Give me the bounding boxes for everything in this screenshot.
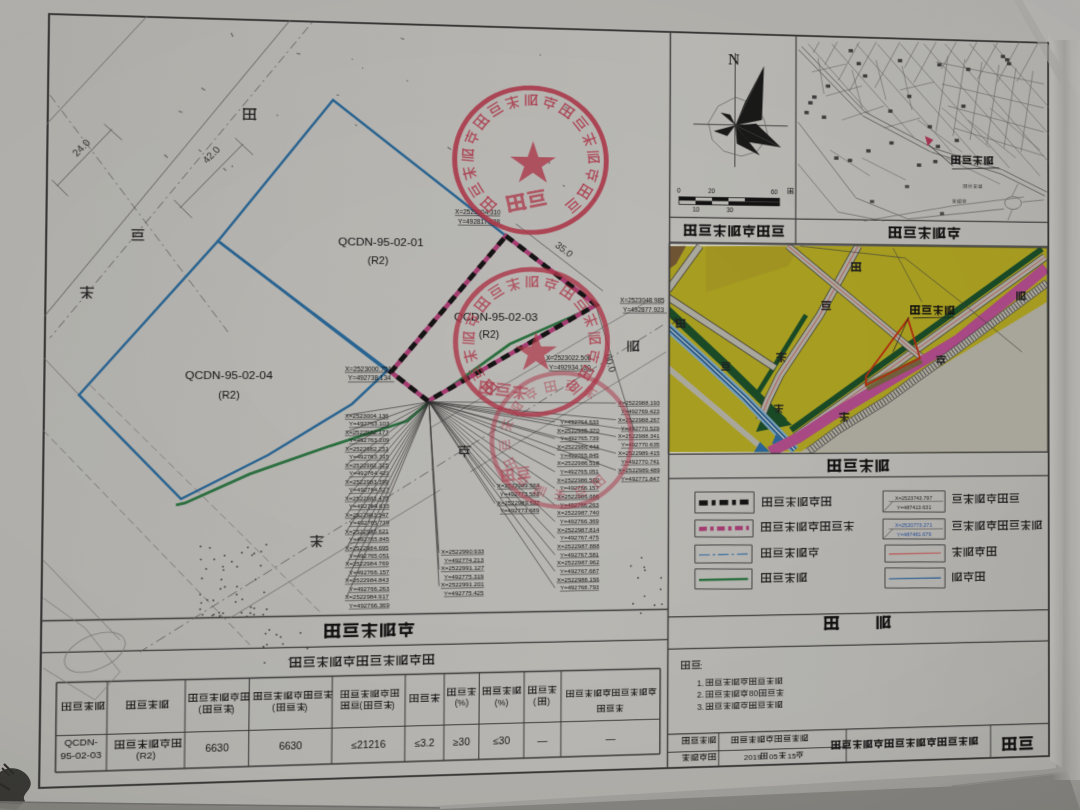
svg-text:(: ( (198, 704, 201, 714)
svg-text:(%): (%) (495, 698, 509, 708)
svg-text:(R2): (R2) (136, 751, 156, 762)
svg-text:1.: 1. (697, 678, 704, 687)
svg-text:QCDN-95-02-04: QCDN-95-02-04 (185, 369, 273, 382)
svg-text:—: — (537, 736, 548, 747)
svg-text:(%): (%) (455, 698, 469, 708)
svg-text:QCDN-: QCDN- (64, 738, 98, 750)
svg-text:20: 20 (708, 189, 715, 195)
svg-text:(R2): (R2) (479, 330, 500, 341)
svg-text:80: 80 (749, 689, 758, 698)
svg-text:2019: 2019 (744, 753, 762, 762)
svg-text:X=2523743.797: X=2523743.797 (895, 496, 932, 502)
svg-text:Y=487413.631: Y=487413.631 (897, 505, 931, 511)
svg-text:6630: 6630 (205, 744, 229, 755)
svg-text:X=2523048.985: X=2523048.985 (620, 297, 665, 304)
svg-text::: : (700, 662, 702, 671)
svg-text:2.: 2. (697, 690, 704, 699)
svg-text:15: 15 (788, 752, 797, 761)
svg-text:60: 60 (771, 190, 778, 196)
svg-text:X=2520773.271: X=2520773.271 (895, 523, 932, 529)
svg-text:3.: 3. (697, 702, 704, 711)
svg-text:): ) (231, 704, 234, 714)
svg-text:—: — (605, 735, 616, 746)
svg-text:0: 0 (677, 188, 681, 194)
svg-text:): ) (304, 703, 307, 713)
svg-text:≤21216: ≤21216 (351, 740, 386, 751)
svg-text:Y=487481.679: Y=487481.679 (897, 532, 931, 538)
svg-text:6630: 6630 (279, 742, 303, 753)
svg-text:QCDN-95-02-01: QCDN-95-02-01 (338, 235, 424, 249)
svg-text:(: ( (272, 703, 275, 713)
svg-text:(R2): (R2) (368, 255, 389, 266)
svg-text:): ) (547, 697, 550, 706)
svg-text:30: 30 (726, 208, 733, 214)
svg-text:≤30: ≤30 (493, 737, 510, 748)
svg-text:≥30: ≥30 (453, 738, 470, 749)
svg-text:05: 05 (769, 752, 778, 761)
svg-text:35.0: 35.0 (553, 241, 575, 261)
svg-text:(R2): (R2) (218, 390, 240, 401)
svg-text:10: 10 (693, 207, 700, 213)
svg-text:42.0: 42.0 (201, 145, 223, 166)
svg-text:(: ( (533, 697, 536, 706)
svg-text:X=2523022.506: X=2523022.506 (546, 355, 591, 362)
svg-text:X=2523000.751: X=2523000.751 (345, 366, 392, 373)
svg-text:): ) (392, 701, 395, 711)
svg-text:N: N (728, 50, 740, 68)
svg-text:95-02-03: 95-02-03 (60, 751, 102, 763)
svg-text:(: ( (359, 701, 362, 711)
svg-text:Y=492877.923: Y=492877.923 (623, 307, 664, 314)
svg-text:≤3.2: ≤3.2 (415, 739, 435, 750)
svg-text:Y=492738.134: Y=492738.134 (348, 376, 391, 383)
